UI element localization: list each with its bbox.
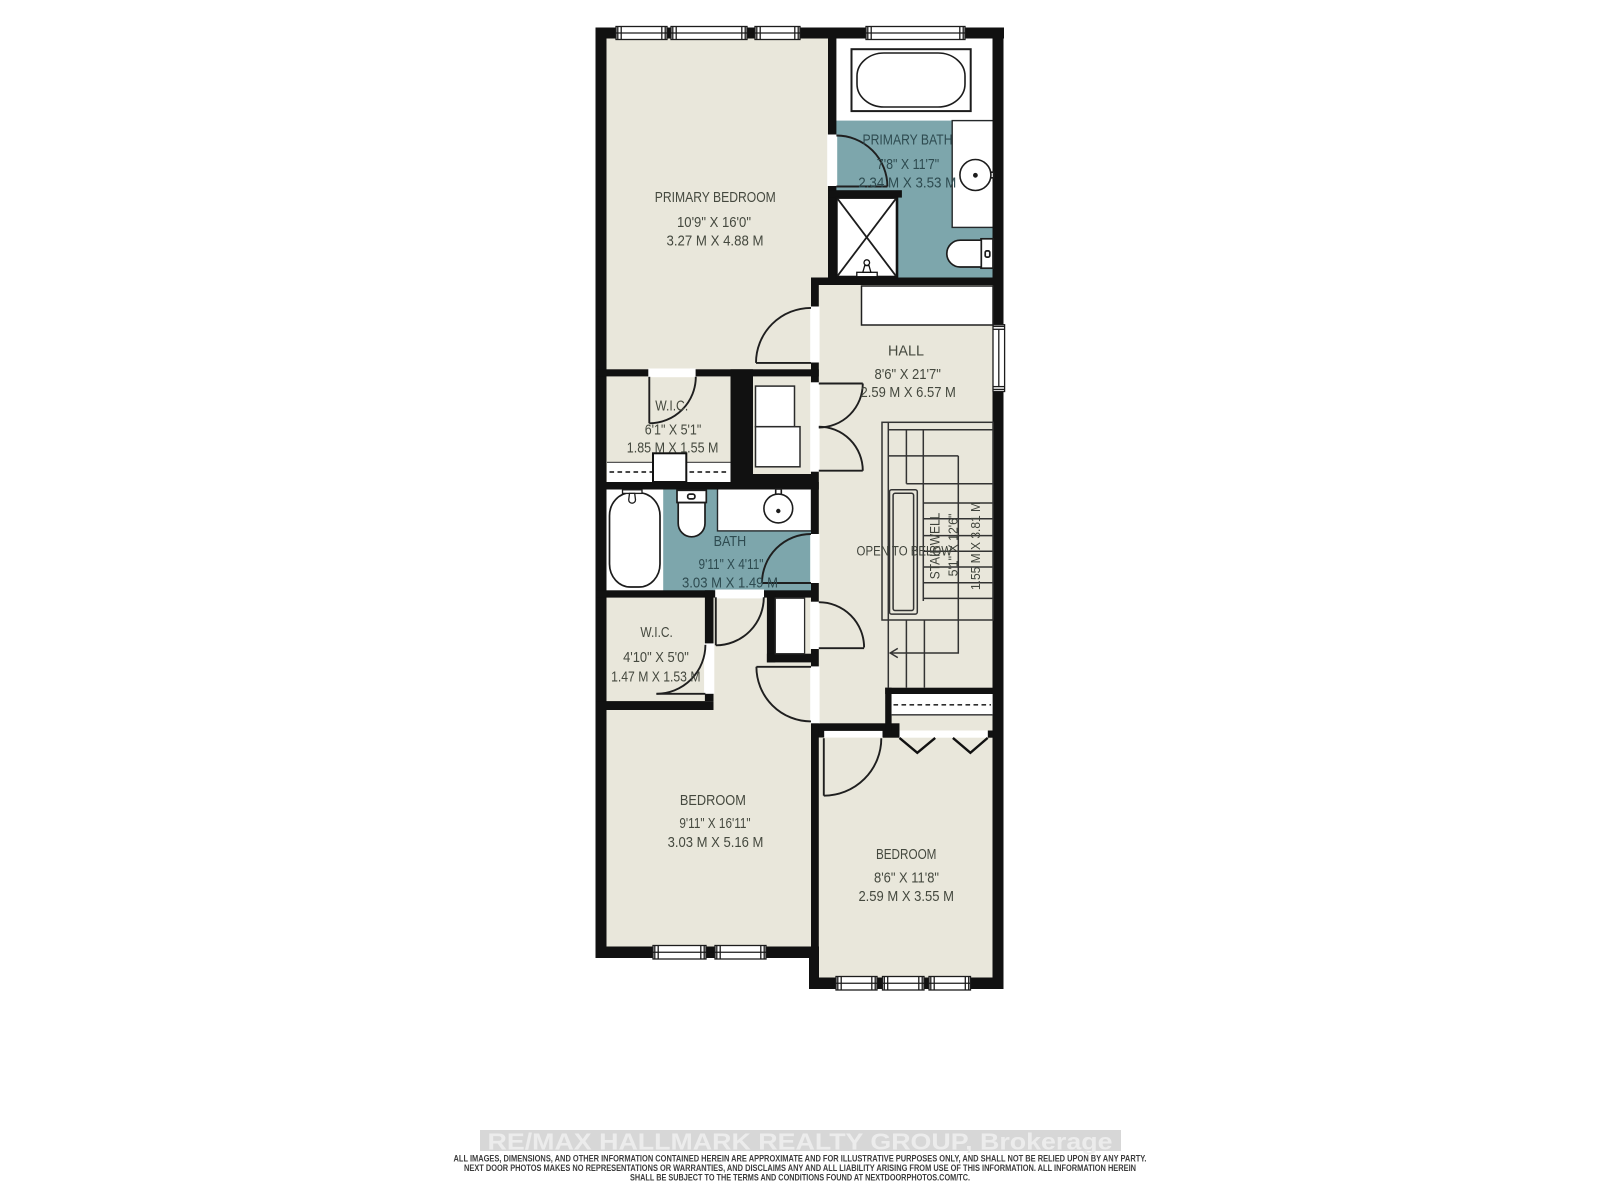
svg-text:BATH: BATH [714, 533, 747, 550]
svg-text:6'1" X 5'1": 6'1" X 5'1" [645, 421, 702, 438]
svg-text:8'6" X 11'8": 8'6" X 11'8" [874, 870, 939, 887]
svg-text:1.47 M X 1.53 M: 1.47 M X 1.53 M [611, 669, 700, 686]
svg-text:10'9" X 16'0": 10'9" X 16'0" [677, 214, 751, 231]
svg-text:2.59 M X 3.55 M: 2.59 M X 3.55 M [858, 888, 954, 905]
svg-text:1.55 M X 3.81 M: 1.55 M X 3.81 M [969, 502, 983, 590]
svg-text:W.I.C.: W.I.C. [655, 398, 688, 415]
svg-text:SHALL BE SUBJECT TO THE TERMS: SHALL BE SUBJECT TO THE TERMS AND CONDIT… [630, 1172, 970, 1183]
svg-text:W.I.C.: W.I.C. [640, 624, 673, 641]
svg-text:3.03 M X 1.49 M: 3.03 M X 1.49 M [682, 575, 778, 592]
svg-text:9'11" X 4'11": 9'11" X 4'11" [699, 556, 764, 573]
svg-text:HALL: HALL [888, 343, 924, 360]
svg-text:RE/MAX HALLMARK REALTY GROUP,: RE/MAX HALLMARK REALTY GROUP, Brokerage [488, 1129, 1113, 1155]
svg-text:3.27 M X 4.88 M: 3.27 M X 4.88 M [667, 233, 764, 250]
svg-text:5'1" X 12'6": 5'1" X 12'6" [947, 514, 961, 577]
svg-text:STAIRWELL: STAIRWELL [927, 513, 943, 580]
svg-text:PRIMARY BATH: PRIMARY BATH [863, 132, 953, 149]
svg-text:4'10" X 5'0": 4'10" X 5'0" [623, 649, 689, 666]
svg-text:BEDROOM: BEDROOM [876, 846, 937, 863]
svg-text:BEDROOM: BEDROOM [680, 792, 746, 809]
svg-text:PRIMARY BEDROOM: PRIMARY BEDROOM [655, 189, 776, 206]
svg-text:2.34 M X 3.53 M: 2.34 M X 3.53 M [858, 175, 956, 192]
svg-text:8'6" X 21'7": 8'6" X 21'7" [874, 366, 941, 383]
svg-text:1.85 M X 1.55 M: 1.85 M X 1.55 M [627, 440, 719, 457]
svg-text:9'11" X 16'11": 9'11" X 16'11" [679, 815, 750, 832]
svg-text:2.59 M X 6.57 M: 2.59 M X 6.57 M [861, 384, 956, 401]
svg-text:7'8" X 11'7": 7'8" X 11'7" [877, 156, 939, 173]
svg-text:3.03 M X 5.16 M: 3.03 M X 5.16 M [668, 834, 764, 851]
